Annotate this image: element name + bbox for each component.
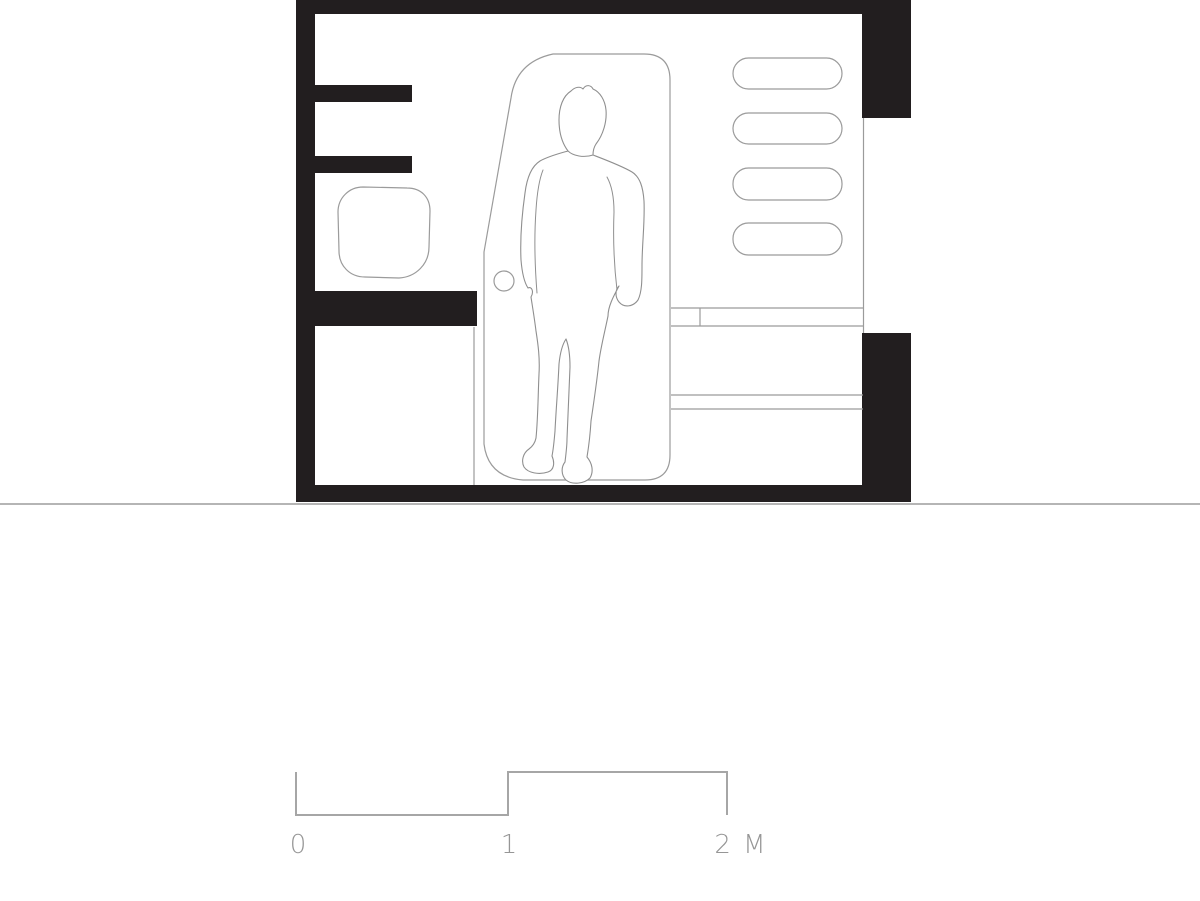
washbasin (338, 187, 430, 278)
wall-niche-2 (733, 113, 842, 144)
section-drawing: 0 1 2 M (0, 0, 1200, 901)
scale-label-2m: 2 M (714, 830, 767, 860)
wall-shelf-lower (315, 156, 412, 173)
wall-top (296, 0, 911, 14)
floor-slab (296, 485, 911, 502)
scale-label-0: 0 (290, 830, 309, 860)
door-knob (494, 271, 514, 291)
wall-niche-1 (733, 58, 842, 89)
wall-right-lower (862, 333, 911, 502)
scale-bar-line (296, 772, 727, 815)
person-outline (521, 86, 644, 484)
wall-left (296, 0, 315, 502)
wall-right-upper (862, 0, 911, 118)
drawing-canvas: 0 1 2 M (0, 0, 1200, 901)
scale-bar: 0 1 2 M (290, 772, 768, 860)
wall-niche-3 (733, 168, 842, 200)
scale-label-1: 1 (501, 830, 520, 860)
person-silhouette (521, 86, 644, 484)
wall-shelf-upper (315, 85, 412, 102)
wall-niche-4 (733, 223, 842, 255)
counter-slab (315, 291, 477, 326)
